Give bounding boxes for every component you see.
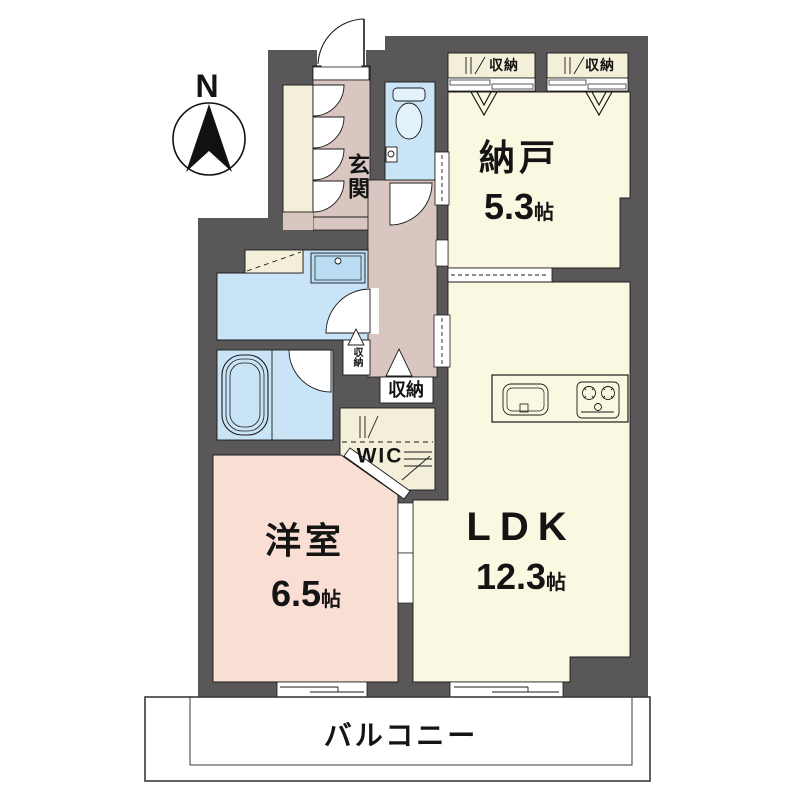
ldk-size: 12.3帖: [476, 559, 566, 595]
partition-opening-upper: [398, 503, 413, 553]
nando-floor: [448, 92, 630, 268]
western-room-label: 洋室: [265, 523, 345, 559]
nando-size: 5.3帖: [484, 189, 554, 225]
genkan-sill: [313, 67, 369, 80]
western-room-size: 6.5帖: [271, 576, 341, 612]
ldk-label: LDK: [466, 507, 575, 547]
balcony-label: バルコニー: [324, 722, 478, 750]
floorplan-drawing: [0, 0, 800, 800]
partition-opening-lower: [398, 553, 413, 603]
western-room: [213, 455, 413, 682]
western-room-floor: [213, 455, 398, 682]
toilet-bowl: [396, 103, 422, 139]
nando-label: 納戸: [479, 140, 559, 176]
genkan-floor-ext: [283, 212, 313, 230]
genkan-label: 玄関: [346, 153, 368, 201]
north-arrow-icon: [186, 104, 232, 172]
compass: [173, 103, 245, 175]
toilet-tank: [393, 88, 425, 101]
wash-basin-faucet: [335, 258, 341, 264]
wash-basin: [311, 253, 365, 283]
ldk-window: [450, 682, 563, 697]
nando-closet-left-label: 収納: [489, 58, 519, 72]
bathroom: [217, 350, 333, 440]
hall-closet-large-label: 収納: [388, 381, 424, 399]
western-room-window: [277, 682, 367, 697]
floorplan: N 玄関 収納 収納 納戸 5.3帖 収納 収納 WIC 洋室 6.5帖 LDK…: [0, 0, 800, 800]
wic-label: WIC: [357, 446, 404, 467]
compass-north-label: N: [195, 70, 218, 102]
hall-closet-small-label: 収納: [351, 347, 361, 367]
nando-closet-right-label: 収納: [585, 58, 615, 72]
